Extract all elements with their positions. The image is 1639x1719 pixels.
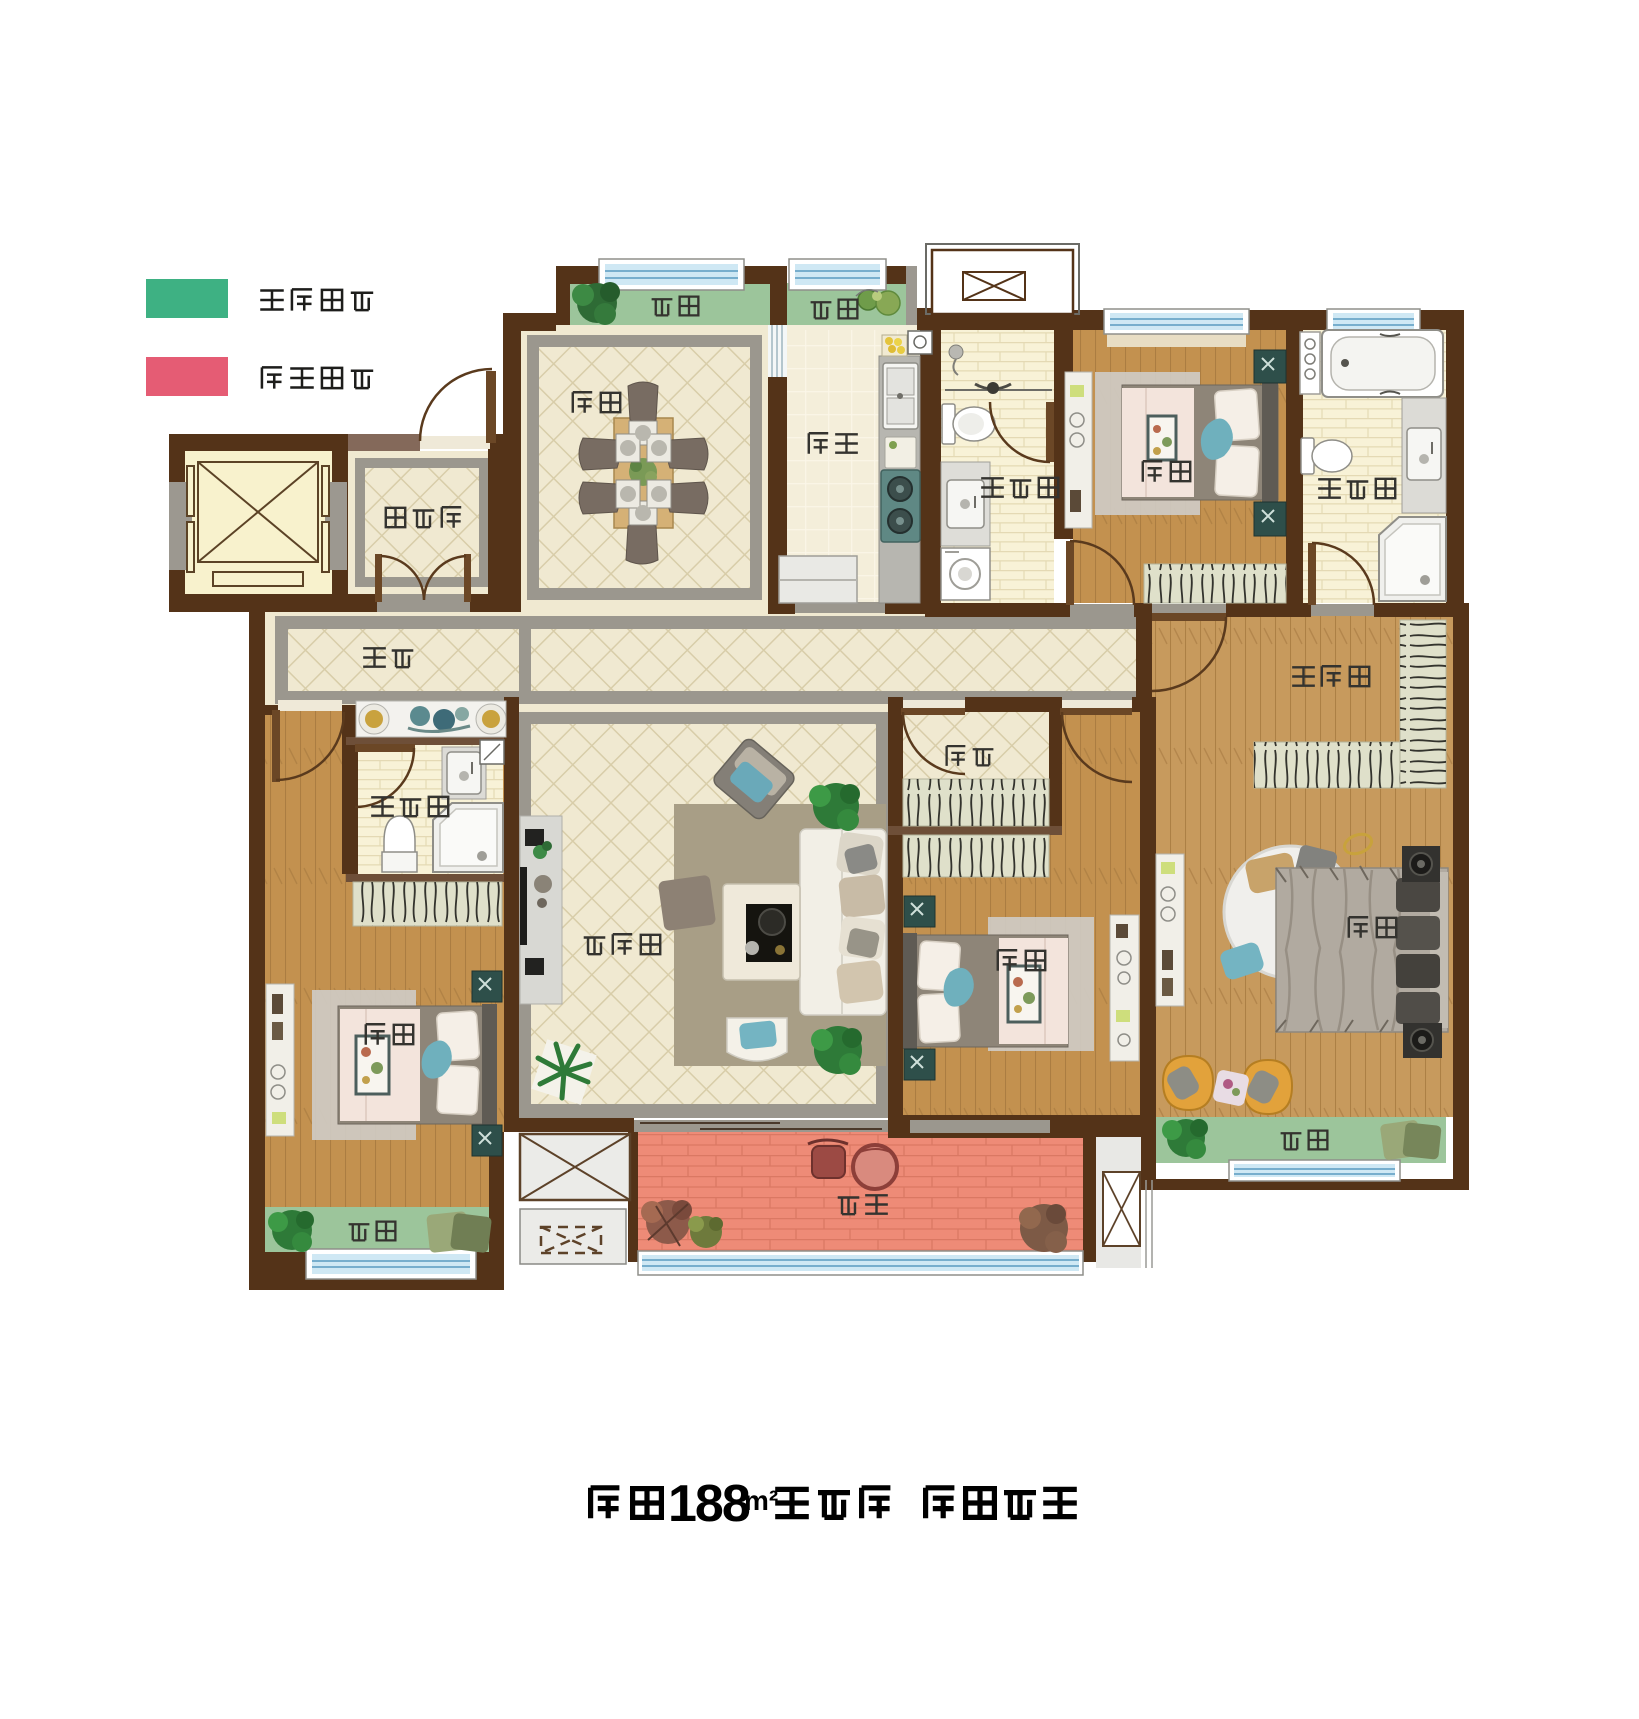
svg-text:188: 188 bbox=[668, 1475, 750, 1533]
svg-text:m²: m² bbox=[744, 1485, 778, 1516]
